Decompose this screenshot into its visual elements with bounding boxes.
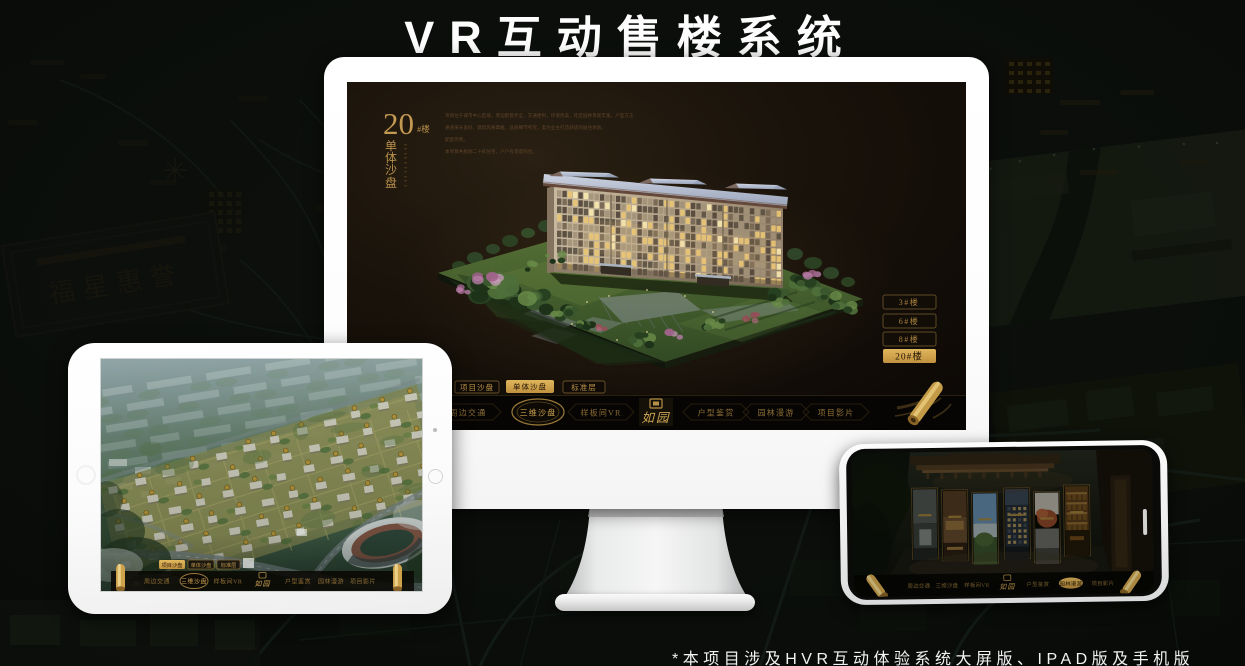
svg-text:20#楼: 20#楼 (895, 351, 923, 363)
svg-text:20: 20 (383, 106, 414, 141)
svg-text:三维沙盘: 三维沙盘 (520, 408, 557, 418)
svg-text:沙: 沙 (385, 163, 397, 177)
svg-text:周边交通: 周边交通 (450, 408, 487, 418)
svg-text:单体沙盘: 单体沙盘 (191, 561, 212, 569)
svg-text:本项目共规划二十栋住宅，户户有景观阳台。: 本项目共规划二十栋住宅，户户有景观阳台。 (445, 148, 537, 155)
svg-text:项目影片: 项目影片 (350, 578, 376, 586)
svg-text:项目沙盘: 项目沙盘 (162, 561, 183, 569)
svg-text:6#楼: 6#楼 (899, 316, 920, 326)
svg-text:样板间VR: 样板间VR (214, 578, 243, 586)
svg-text:户型鉴赏: 户型鉴赏 (285, 578, 311, 586)
svg-text:项目沙盘: 项目沙盘 (460, 382, 494, 392)
svg-text:项目影片: 项目影片 (818, 408, 855, 418)
svg-text:配套完善。: 配套完善。 (445, 136, 468, 143)
svg-text:项目位于城市中心区域，周边配套齐全，交通便利，环境优美，社区: 项目位于城市中心区域，周边配套齐全，交通便利，环境优美，社区园林景观丰富，户型方… (445, 112, 634, 119)
svg-text:园林漫游: 园林漫游 (758, 408, 795, 418)
svg-text:标准层: 标准层 (571, 382, 597, 392)
svg-text:#楼: #楼 (417, 124, 430, 134)
svg-text:通透采光良好，建筑风格典雅，品质细节考究，奥为业主打造舒适的: 通透采光良好，建筑风格典雅，品质细节考究，奥为业主打造舒适的居住体验。 (445, 124, 606, 131)
svg-text:周边交通: 周边交通 (144, 578, 170, 586)
svg-text:盘: 盘 (385, 175, 397, 190)
svg-text:标准层: 标准层 (221, 561, 237, 569)
svg-text:3#楼: 3#楼 (899, 297, 920, 307)
svg-text:如园: 如园 (641, 411, 670, 425)
svg-text:三维沙盘: 三维沙盘 (181, 578, 207, 586)
svg-text:如园: 如园 (255, 580, 271, 588)
svg-text:样板间VR: 样板间VR (580, 408, 621, 418)
svg-text:单体沙盘: 单体沙盘 (513, 382, 547, 392)
svg-text:园林漫游: 园林漫游 (318, 578, 344, 586)
svg-text:8#楼: 8#楼 (899, 334, 920, 344)
svg-text:户型鉴赏: 户型鉴赏 (698, 408, 735, 418)
